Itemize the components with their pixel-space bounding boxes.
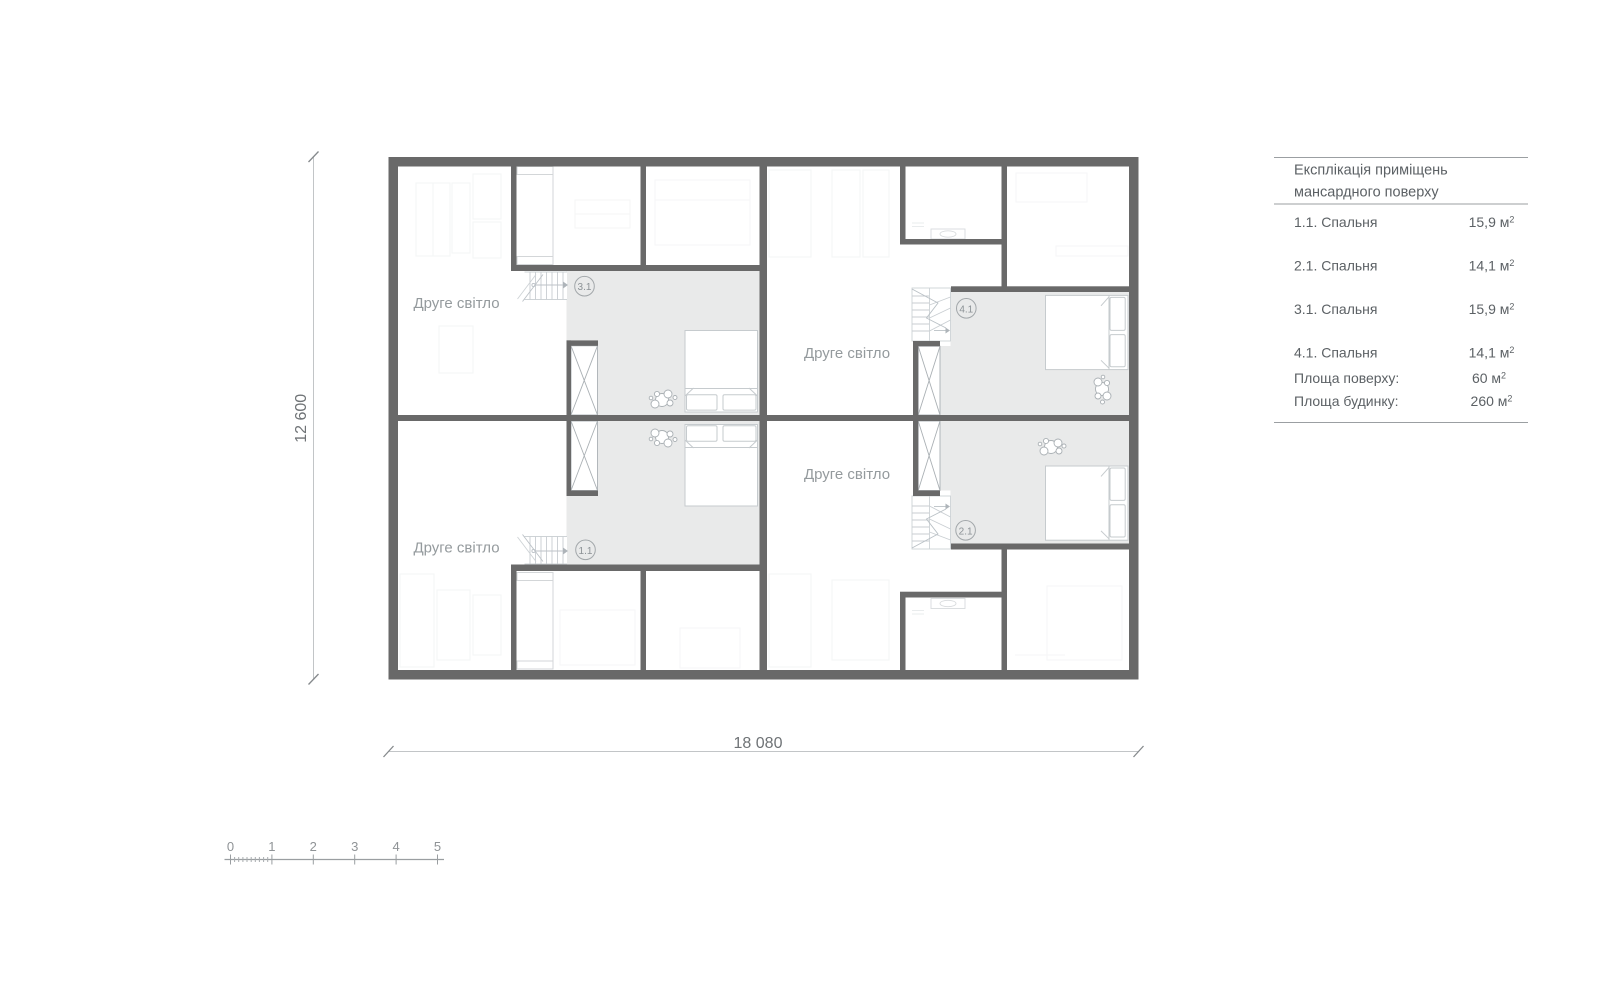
svg-text:12 600: 12 600	[293, 394, 310, 443]
svg-text:Друге світло: Друге світло	[804, 466, 890, 483]
svg-text:Площа будинку:: Площа будинку:	[1294, 393, 1399, 409]
svg-text:3.1. Спальня: 3.1. Спальня	[1294, 301, 1378, 317]
svg-text:15,9 м2: 15,9 м2	[1469, 214, 1515, 230]
svg-text:Друге світло: Друге світло	[413, 540, 499, 557]
svg-text:4.1: 4.1	[959, 304, 973, 315]
svg-text:Друге світло: Друге світло	[413, 295, 499, 312]
svg-text:2: 2	[310, 839, 317, 854]
svg-text:Площа поверху:: Площа поверху:	[1294, 370, 1399, 386]
svg-text:Друге світло: Друге світло	[804, 345, 890, 362]
svg-text:3: 3	[351, 839, 358, 854]
svg-text:260 м2: 260 м2	[1471, 393, 1513, 409]
svg-text:1: 1	[268, 839, 275, 854]
svg-text:5: 5	[434, 839, 441, 854]
svg-text:4: 4	[392, 839, 399, 854]
svg-text:4.1. Спальня: 4.1. Спальня	[1294, 345, 1378, 361]
svg-text:2.1. Спальня: 2.1. Спальня	[1294, 258, 1378, 274]
svg-text:14,1 м2: 14,1 м2	[1469, 258, 1515, 274]
svg-text:мансардного поверху: мансардного поверху	[1294, 185, 1439, 201]
svg-text:14,1 м2: 14,1 м2	[1469, 345, 1515, 361]
svg-text:1.1. Спальня: 1.1. Спальня	[1294, 214, 1378, 230]
svg-text:1.1: 1.1	[579, 546, 593, 557]
svg-text:Експлікація приміщень: Експлікація приміщень	[1294, 163, 1448, 179]
svg-text:18 080: 18 080	[734, 735, 783, 752]
svg-text:2.1: 2.1	[959, 526, 973, 537]
svg-text:3.1: 3.1	[578, 282, 592, 293]
svg-text:15,9 м2: 15,9 м2	[1469, 301, 1515, 317]
svg-text:0: 0	[227, 839, 234, 854]
svg-text:60 м2: 60 м2	[1472, 370, 1506, 386]
